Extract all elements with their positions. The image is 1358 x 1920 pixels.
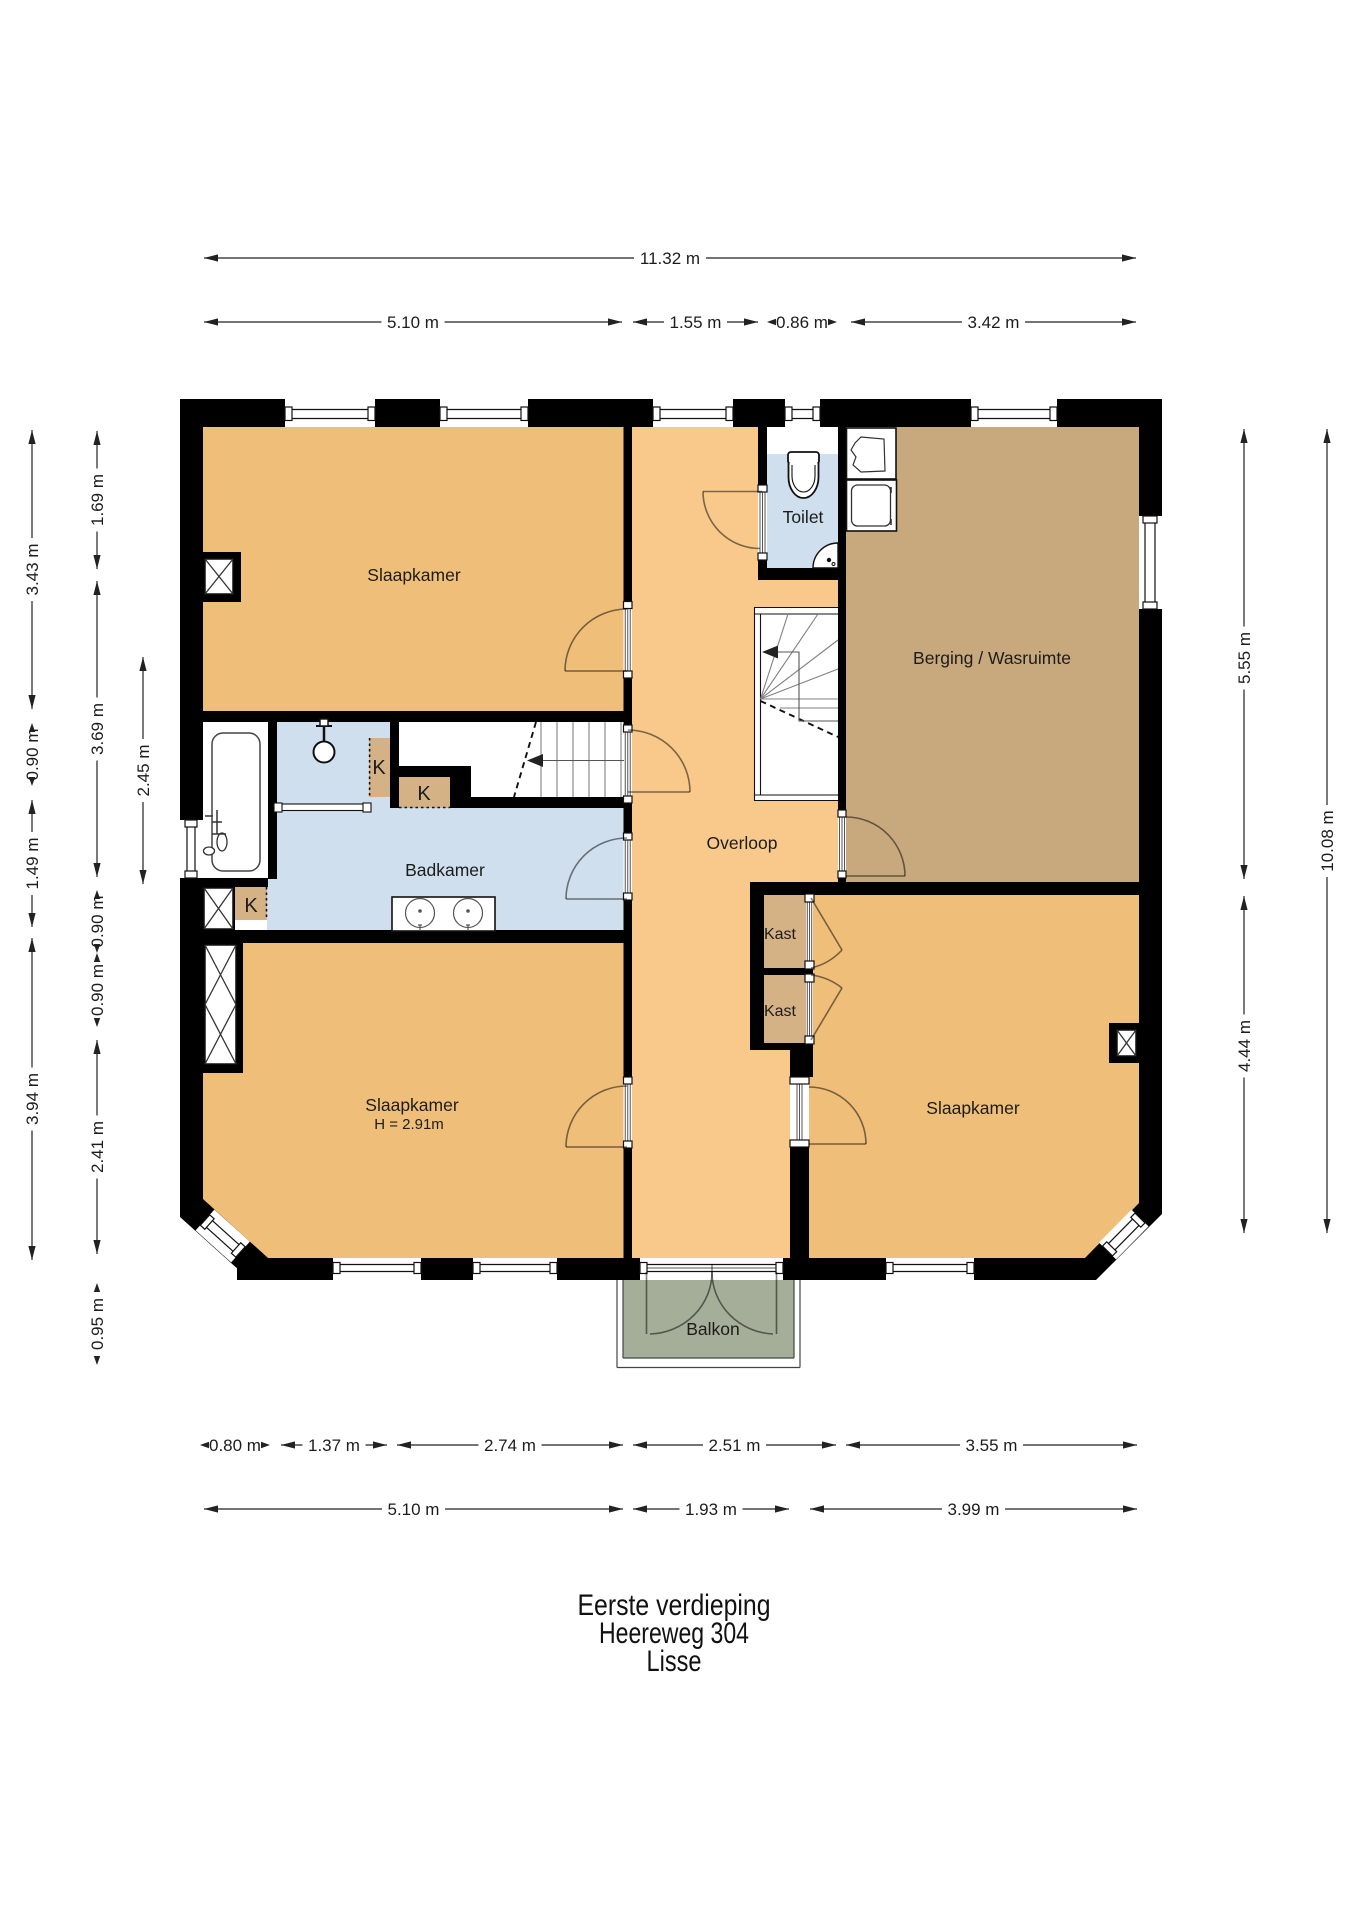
svg-text:3.94 m: 3.94 m bbox=[23, 1073, 42, 1125]
svg-text:Slaapkamer: Slaapkamer bbox=[367, 565, 461, 585]
svg-text:3.55 m: 3.55 m bbox=[966, 1436, 1018, 1455]
svg-text:Balkon: Balkon bbox=[686, 1319, 740, 1339]
svg-text:3.43 m: 3.43 m bbox=[23, 544, 42, 596]
svg-text:K: K bbox=[244, 895, 258, 917]
svg-text:5.10 m: 5.10 m bbox=[388, 1500, 440, 1519]
svg-text:0.90 m: 0.90 m bbox=[23, 729, 42, 781]
svg-text:2.51 m: 2.51 m bbox=[709, 1436, 761, 1455]
svg-text:5.55 m: 5.55 m bbox=[1235, 632, 1254, 684]
svg-text:5.10 m: 5.10 m bbox=[387, 313, 439, 332]
svg-text:Lisse: Lisse bbox=[647, 1645, 702, 1678]
svg-text:Berging / Wasruimte: Berging / Wasruimte bbox=[913, 648, 1071, 668]
svg-text:3.69 m: 3.69 m bbox=[88, 703, 107, 755]
svg-text:1.69 m: 1.69 m bbox=[88, 474, 107, 526]
svg-text:Toilet: Toilet bbox=[783, 507, 824, 527]
svg-text:Slaapkamer: Slaapkamer bbox=[926, 1098, 1020, 1118]
svg-text:1.93 m: 1.93 m bbox=[685, 1500, 737, 1519]
svg-text:1.37 m: 1.37 m bbox=[308, 1436, 360, 1455]
svg-text:3.99 m: 3.99 m bbox=[948, 1500, 1000, 1519]
svg-text:2.45 m: 2.45 m bbox=[134, 745, 153, 797]
svg-text:0.86 m: 0.86 m bbox=[776, 313, 828, 332]
svg-text:2.41 m: 2.41 m bbox=[88, 1121, 107, 1173]
svg-text:3.42 m: 3.42 m bbox=[968, 313, 1020, 332]
svg-text:11.32 m: 11.32 m bbox=[640, 249, 700, 268]
svg-text:K: K bbox=[372, 757, 386, 779]
svg-text:Slaapkamer: Slaapkamer bbox=[365, 1095, 459, 1115]
svg-text:0.95 m: 0.95 m bbox=[88, 1298, 107, 1350]
svg-text:Overloop: Overloop bbox=[706, 833, 777, 853]
svg-text:K: K bbox=[417, 783, 431, 805]
svg-text:Kast: Kast bbox=[764, 926, 797, 943]
svg-text:Kast: Kast bbox=[764, 1003, 797, 1020]
svg-text:0.90 m: 0.90 m bbox=[88, 964, 107, 1016]
svg-text:4.44 m: 4.44 m bbox=[1235, 1020, 1254, 1072]
svg-text:1.49 m: 1.49 m bbox=[23, 838, 42, 890]
svg-text:H = 2.91m: H = 2.91m bbox=[374, 1116, 444, 1133]
svg-text:10.08 m: 10.08 m bbox=[1318, 810, 1337, 871]
svg-text:1.55 m: 1.55 m bbox=[670, 313, 722, 332]
svg-text:0.80 m: 0.80 m bbox=[209, 1436, 261, 1455]
svg-text:2.74 m: 2.74 m bbox=[484, 1436, 536, 1455]
svg-text:0.90 m: 0.90 m bbox=[88, 896, 107, 948]
svg-text:Badkamer: Badkamer bbox=[405, 860, 485, 880]
